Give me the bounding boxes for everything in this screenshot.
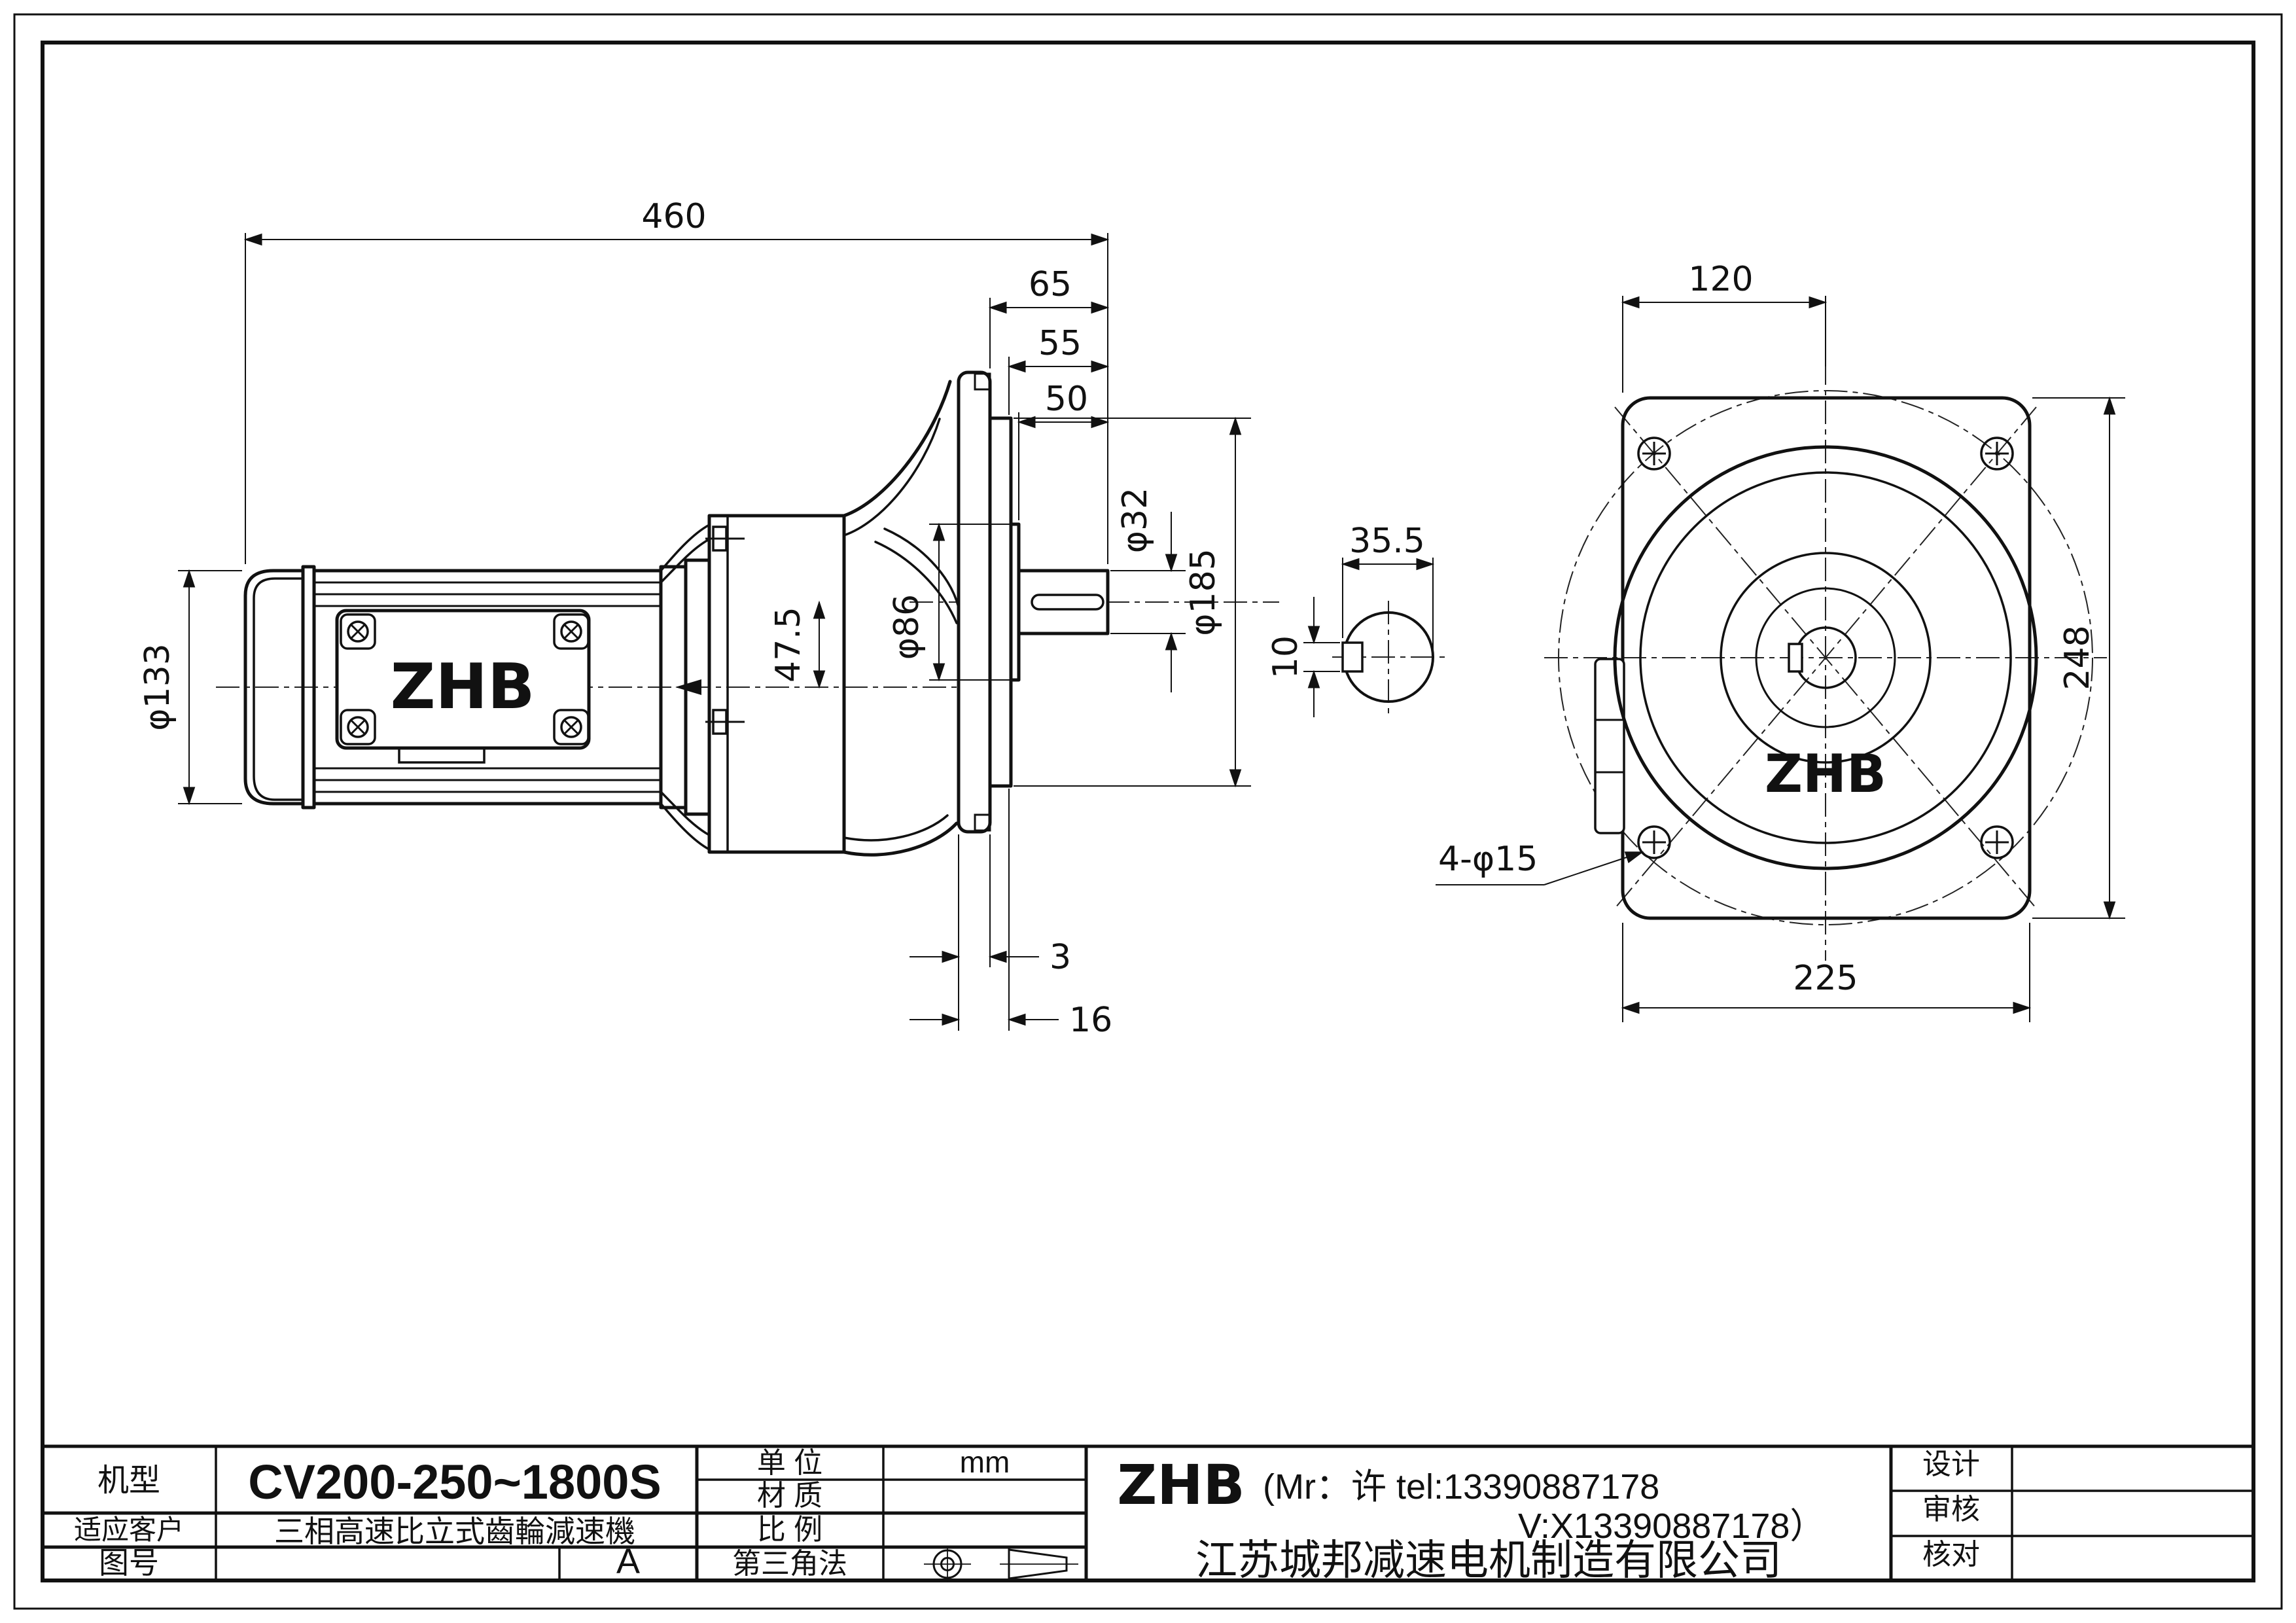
dim-shaft-dia: φ32: [1116, 488, 1155, 553]
dim-overall-length: 460: [641, 197, 706, 236]
dim-depth-16: 16: [1069, 1001, 1112, 1040]
dim-key-width: 10: [1266, 635, 1305, 679]
contact-line1: (Mr：许 tel:13390887178: [1263, 1467, 1659, 1507]
check-label: 核对: [1922, 1539, 1980, 1571]
front-keyway: [1789, 644, 1802, 671]
model-value: CV200-250~1800S: [248, 1455, 662, 1509]
dim-width-across: 35.5: [1349, 522, 1425, 561]
dim-spigot-dia: φ185: [1184, 548, 1223, 636]
model-label: 机型: [97, 1463, 160, 1498]
paper: [0, 0, 2296, 1623]
dim-bolt-offset: 120: [1688, 260, 1753, 299]
drawing-sheet: ZHB: [0, 0, 2296, 1623]
dim-axis-offset: 47.5: [769, 607, 808, 683]
drawing-no-label: 图号: [99, 1546, 159, 1580]
flange-spigot: [990, 418, 1011, 786]
dim-gap-3: 3: [1050, 938, 1071, 977]
dim-bolt-holes: 4-φ15: [1438, 840, 1538, 879]
dim-ext-50: 50: [1045, 380, 1088, 419]
scale-label: 比 例: [757, 1514, 822, 1546]
unit-label: 单 位: [757, 1447, 822, 1479]
dim-flange-width: 225: [1793, 959, 1858, 998]
client-label: 适应客户: [74, 1514, 184, 1545]
client-value: 三相高速比立式齒輪減速機: [274, 1514, 635, 1548]
company-name: 江苏城邦减速电机制造有限公司: [1195, 1537, 1782, 1584]
rev-value: A: [616, 1542, 640, 1581]
dim-ext-65: 65: [1029, 265, 1072, 304]
projection-label: 第三角法: [732, 1548, 847, 1580]
gear-motor-drawing: ZHB: [0, 0, 2296, 1623]
front-brand-label: ZHB: [1765, 743, 1886, 804]
dim-flange-height: 248: [2058, 625, 2097, 690]
keyway-section: [1343, 643, 1362, 671]
dim-boss-dia: φ86: [887, 594, 927, 660]
motor-brand-label: ZHB: [391, 651, 535, 723]
material-label: 材 质: [757, 1480, 822, 1512]
dim-motor-dia: φ133: [138, 643, 177, 731]
review-label: 审核: [1922, 1493, 1980, 1525]
company-brand: ZHB: [1117, 1453, 1245, 1517]
design-label: 设计: [1922, 1448, 1980, 1480]
unit-value: mm: [960, 1445, 1010, 1479]
mount-flange-plate: [959, 372, 990, 832]
dim-ext-55: 55: [1038, 324, 1082, 363]
side-tab: [1595, 659, 1624, 833]
